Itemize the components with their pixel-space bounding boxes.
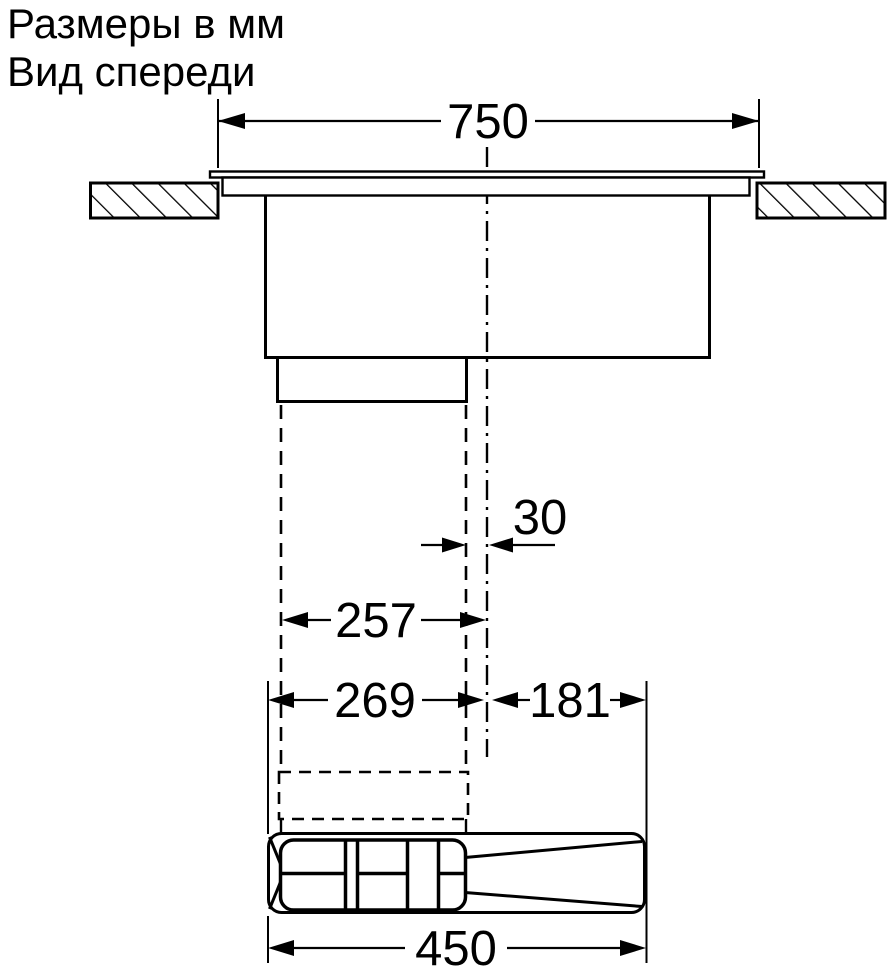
plinth-right-taper xyxy=(465,842,642,907)
dimension-450: 450 xyxy=(268,916,646,970)
countertop-right-section xyxy=(757,183,885,218)
dimension-257: 257 xyxy=(282,594,486,648)
dim-label-450: 450 xyxy=(415,922,497,970)
duct-outlet-dashed-box xyxy=(279,772,468,819)
technical-drawing-canvas: Размеры в мм Вид спереди xyxy=(0,0,888,970)
dimension-drawing: 750 30 257 269 xyxy=(0,0,888,970)
dim-label-750: 750 xyxy=(447,95,529,149)
dim-label-257: 257 xyxy=(335,594,417,648)
dimension-269: 269 xyxy=(268,674,484,834)
dimension-181: 181 xyxy=(492,674,647,963)
hob-frame-band xyxy=(223,178,750,196)
dim-label-269: 269 xyxy=(334,674,416,728)
dim-label-181: 181 xyxy=(529,674,611,728)
plinth-duct-unit xyxy=(269,834,645,913)
dimension-750: 750 xyxy=(218,95,759,168)
duct-connector-step xyxy=(276,359,468,402)
dimension-30: 30 xyxy=(421,491,567,553)
countertop-left-section xyxy=(91,183,219,218)
dim-label-30: 30 xyxy=(513,491,568,545)
